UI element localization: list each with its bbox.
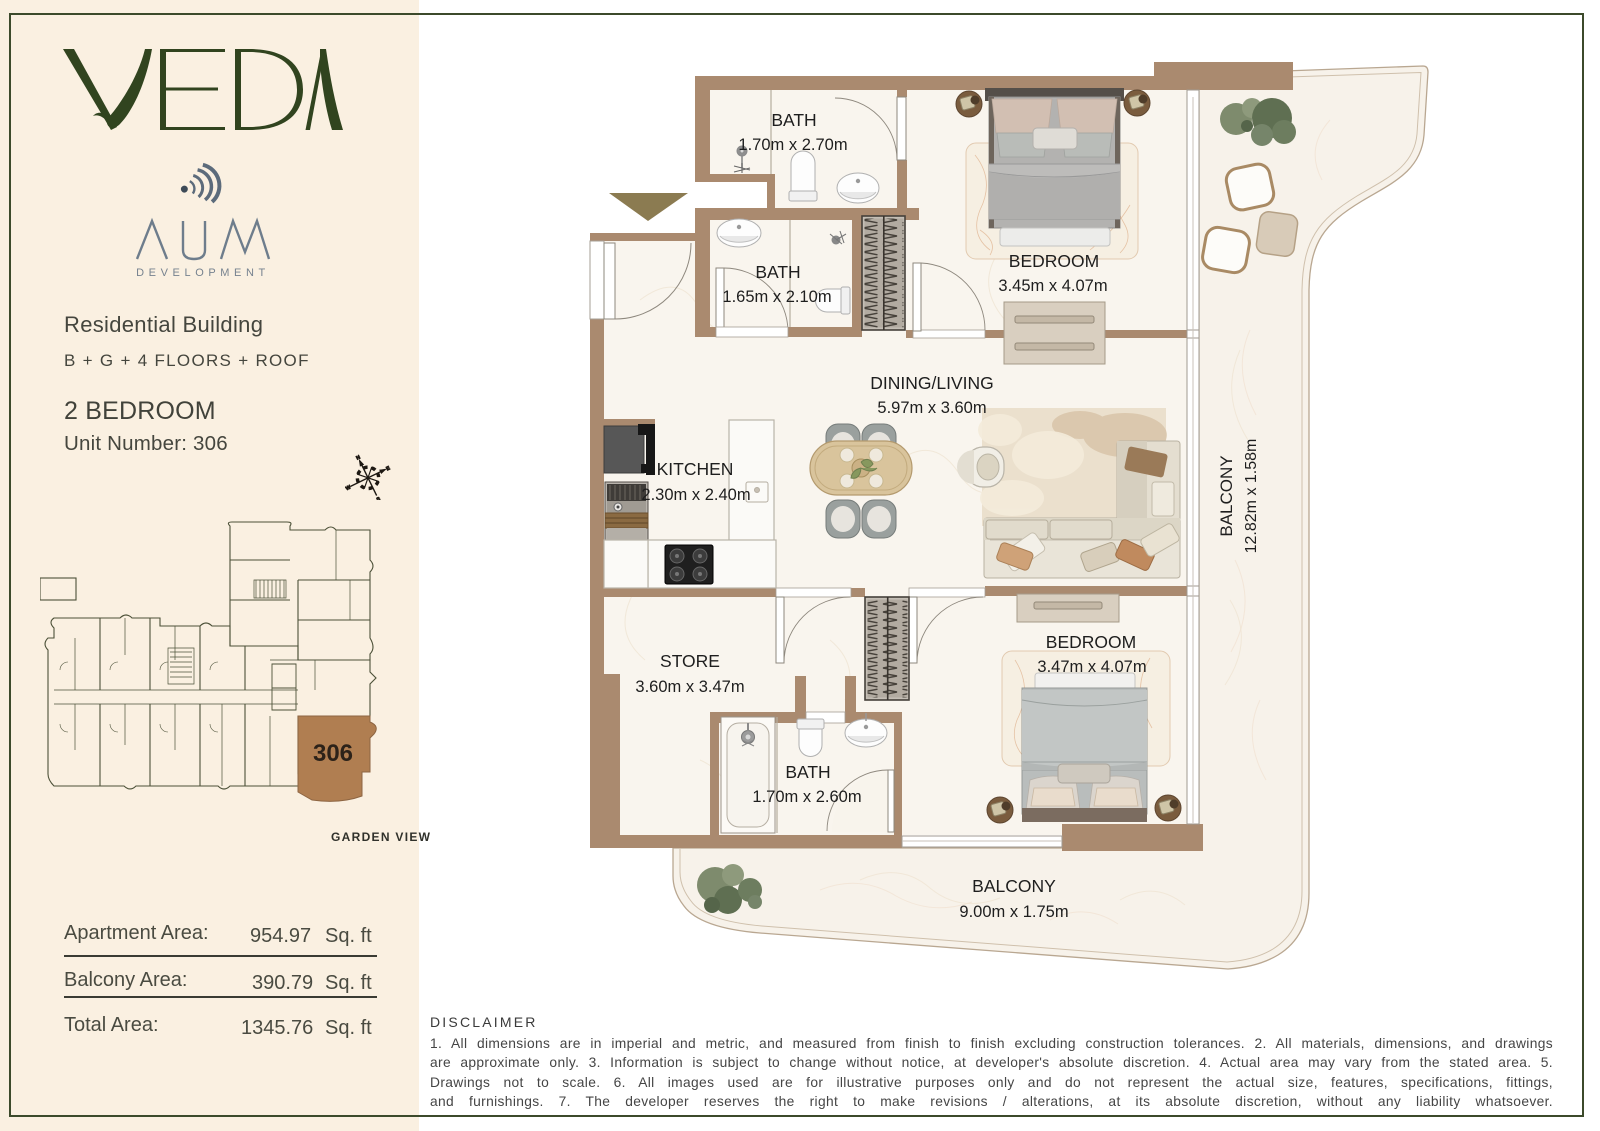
- svg-text:3.47m x 4.07m: 3.47m x 4.07m: [1037, 658, 1146, 676]
- svg-text:2.30m x 2.40m: 2.30m x 2.40m: [641, 486, 750, 504]
- svg-text:12.82m x 1.58m: 12.82m x 1.58m: [1243, 439, 1260, 554]
- svg-text:1.70m x 2.60m: 1.70m x 2.60m: [752, 788, 861, 806]
- svg-text:3.45m x 4.07m: 3.45m x 4.07m: [998, 277, 1107, 295]
- svg-text:BEDROOM: BEDROOM: [1009, 251, 1099, 271]
- svg-text:BALCONY: BALCONY: [972, 876, 1056, 896]
- svg-text:1.70m x 2.70m: 1.70m x 2.70m: [738, 136, 847, 154]
- svg-text:BATH: BATH: [755, 262, 800, 282]
- svg-text:3.60m x 3.47m: 3.60m x 3.47m: [635, 678, 744, 696]
- svg-text:DINING/LIVING: DINING/LIVING: [870, 373, 994, 393]
- svg-text:KITCHEN: KITCHEN: [657, 459, 734, 479]
- svg-text:BATH: BATH: [771, 110, 816, 130]
- svg-text:9.00m x 1.75m: 9.00m x 1.75m: [959, 903, 1068, 921]
- svg-text:BALCONY: BALCONY: [1217, 455, 1236, 536]
- svg-text:BEDROOM: BEDROOM: [1046, 632, 1136, 652]
- svg-text:1.65m x 2.10m: 1.65m x 2.10m: [722, 288, 831, 306]
- svg-text:5.97m x 3.60m: 5.97m x 3.60m: [877, 399, 986, 417]
- svg-text:BATH: BATH: [785, 762, 830, 782]
- svg-text:STORE: STORE: [660, 651, 720, 671]
